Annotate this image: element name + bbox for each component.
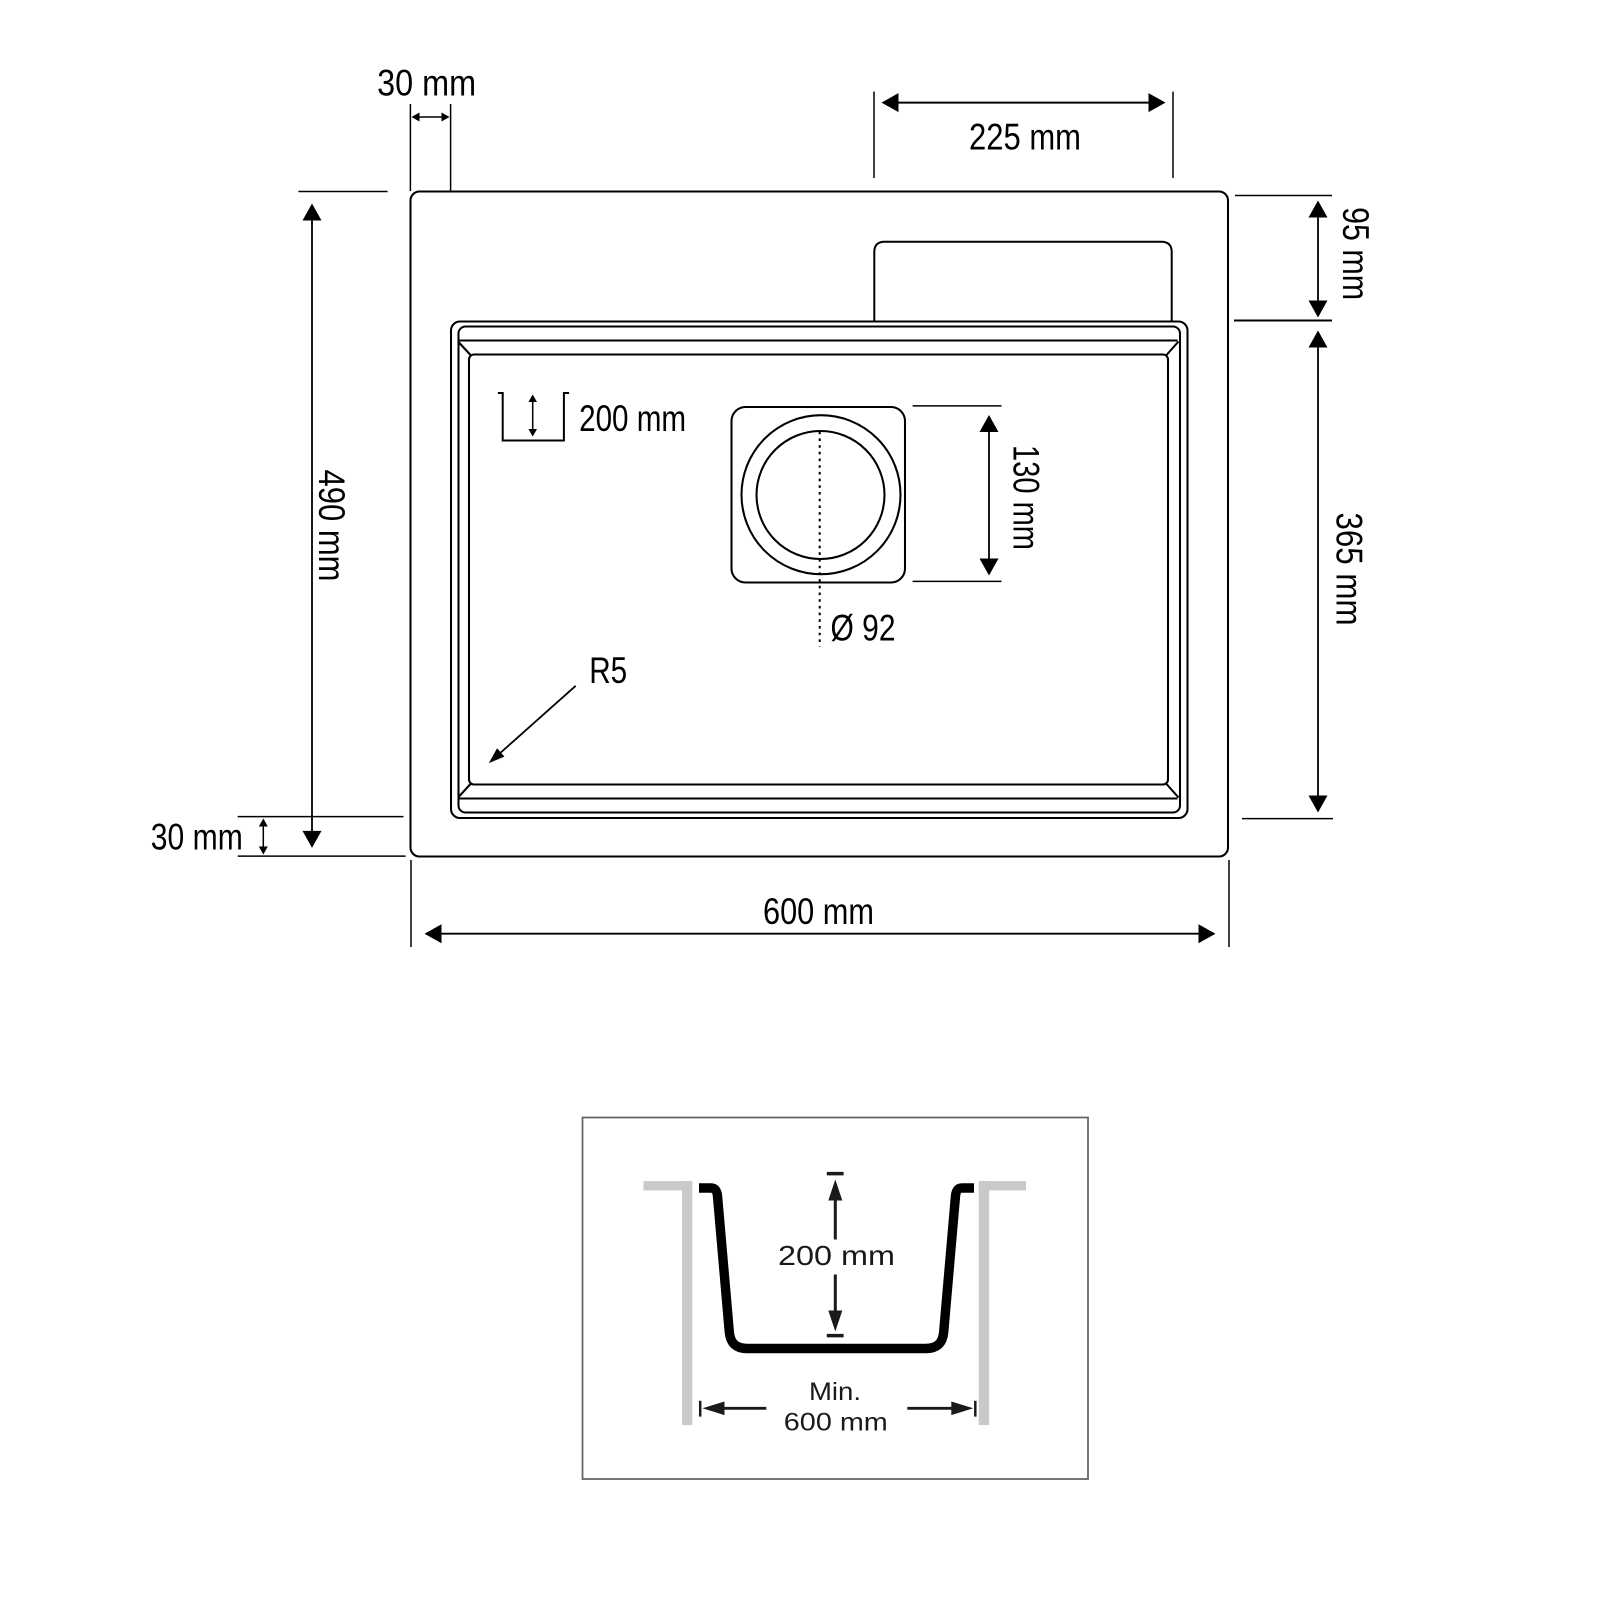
svg-text:225 mm: 225 mm [969,117,1081,158]
svg-text:200 mm: 200 mm [579,398,686,439]
svg-text:R5: R5 [589,650,627,691]
svg-text:130 mm: 130 mm [1006,445,1047,550]
svg-text:490 mm: 490 mm [311,470,352,582]
svg-text:Min.: Min. [809,1378,861,1406]
svg-text:365 mm: 365 mm [1329,513,1370,626]
svg-text:30 mm: 30 mm [377,63,476,104]
svg-text:200 mm: 200 mm [778,1240,895,1271]
svg-text:30 mm: 30 mm [151,817,243,858]
svg-text:600 mm: 600 mm [763,891,874,932]
svg-text:95 mm: 95 mm [1335,207,1376,300]
svg-text:600 mm: 600 mm [784,1409,888,1437]
svg-text:Ø 92: Ø 92 [831,608,896,649]
